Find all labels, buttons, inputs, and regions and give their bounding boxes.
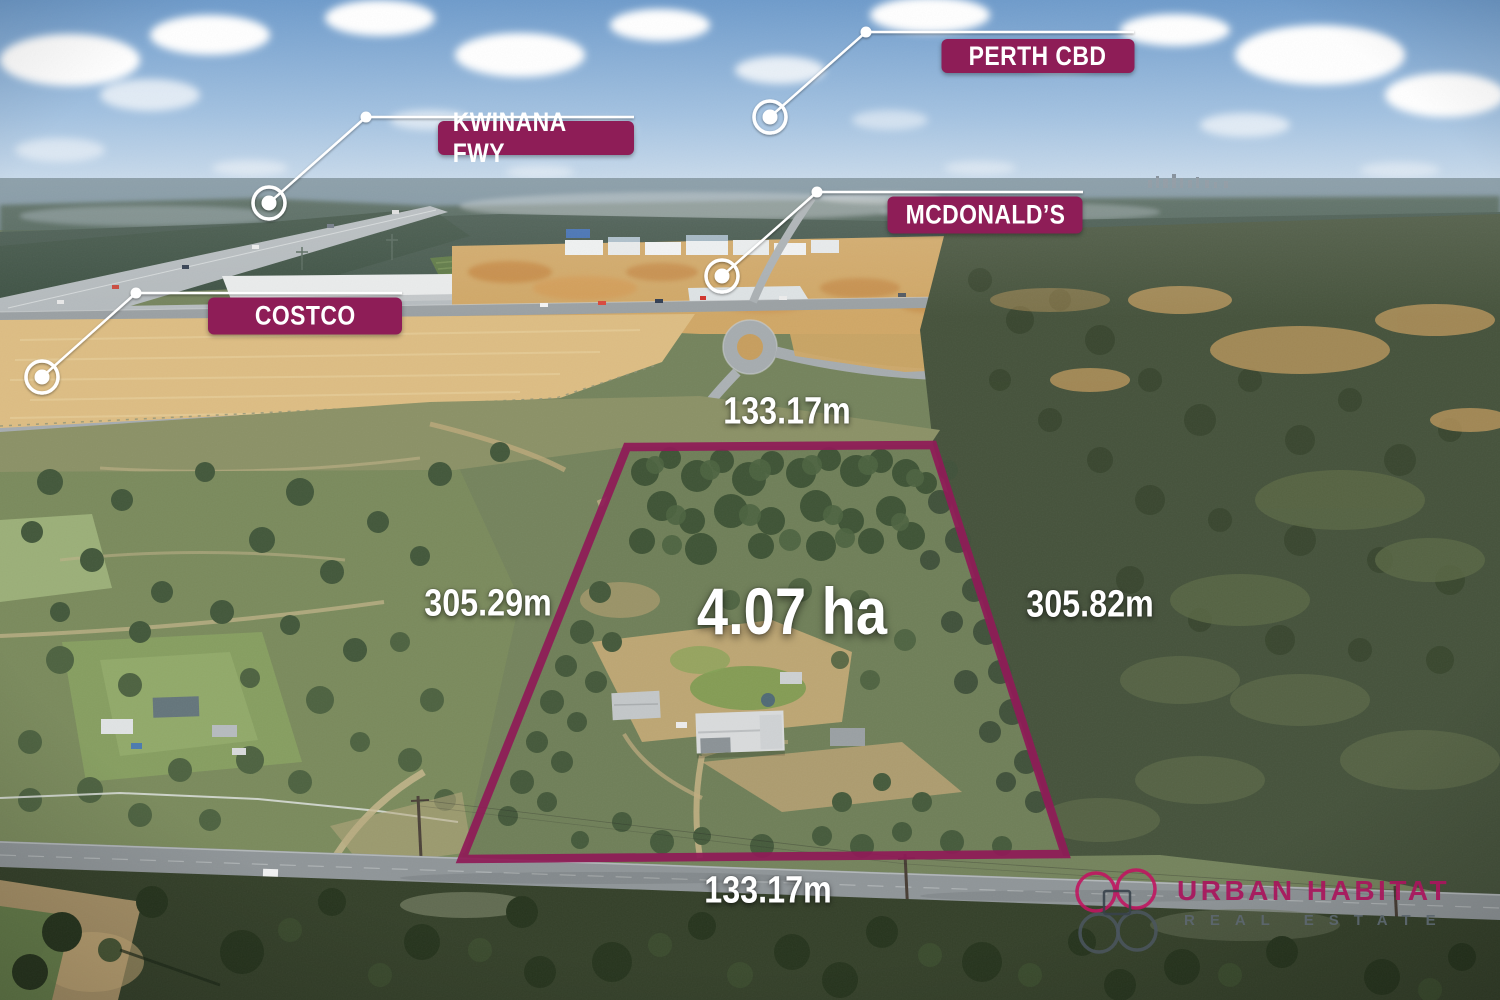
perth-cbd-marker-icon [754,101,786,133]
location-label-mcdonalds: MCDONALD’S [888,197,1083,234]
kwinana-fwy-elbow-dot [361,112,372,123]
brand-name: URBAN HABITAT [1177,876,1450,907]
location-label-kwinana-fwy: KWINANA FWY [438,121,634,155]
mcdonalds-elbow-dot [812,187,823,198]
kwinana-fwy-marker-icon [253,187,285,219]
measurement-left: 305.29m [413,583,563,626]
aerial-listing-image: 133.17m 305.29m 305.82m 133.17m 4.07 ha … [0,0,1500,1000]
measurement-bottom: 133.17m [693,870,843,913]
area-label: 4.07 ha [680,573,904,649]
costco-elbow-dot [131,288,142,299]
mcdonalds-marker-icon [706,260,738,292]
location-label-costco: COSTCO [208,298,402,335]
annotation-overlay [0,0,1500,1000]
property-boundary [462,445,1065,859]
measurement-right: 305.82m [1015,584,1165,627]
costco-marker-icon [26,361,58,393]
measurement-top: 133.17m [712,391,862,434]
location-label-perth-cbd: PERTH CBD [942,39,1135,73]
brand-tagline: REAL ESTATE [1184,913,1451,930]
perth-cbd-elbow-dot [861,27,872,38]
brand-logo-rings-icon [1077,870,1156,952]
